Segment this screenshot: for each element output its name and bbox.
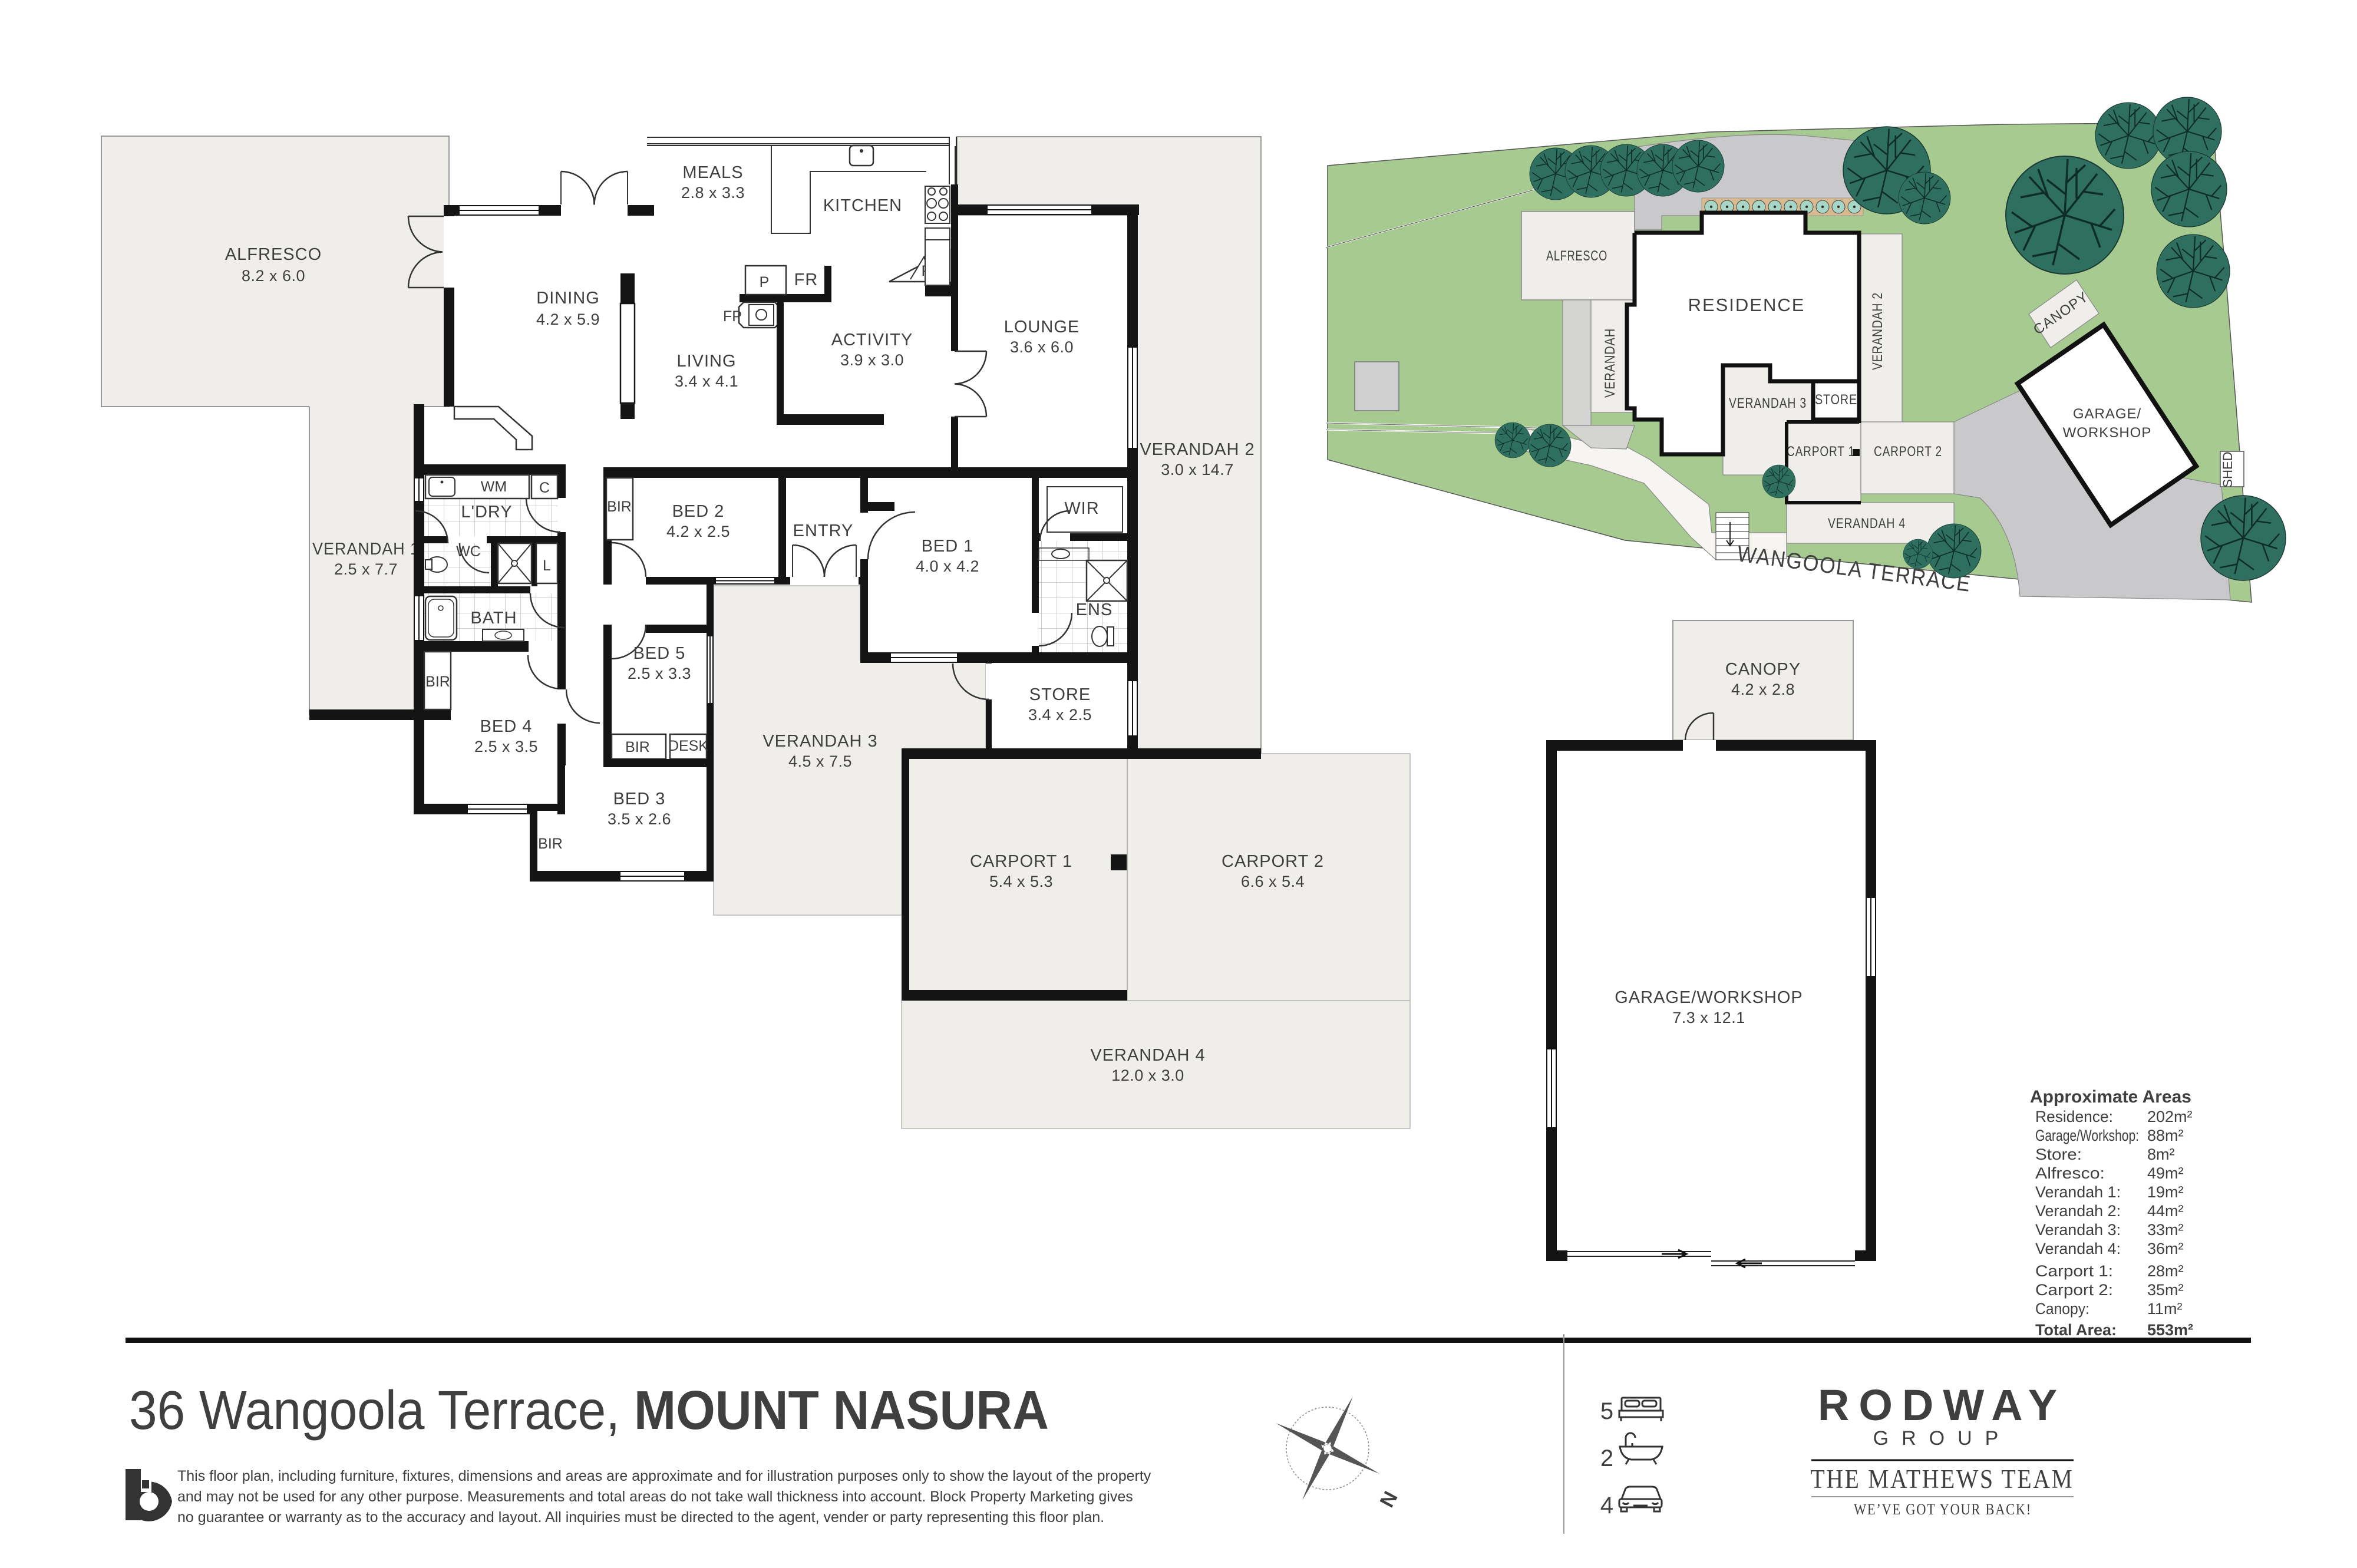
svg-text:BED 5: BED 5 xyxy=(633,644,686,663)
svg-text:8m²: 8m² xyxy=(2147,1146,2175,1163)
svg-text:and may not be used for any ot: and may not be used for any other purpos… xyxy=(177,1488,1133,1505)
svg-text:ALFRESCO: ALFRESCO xyxy=(1546,248,1607,264)
svg-text:DESK: DESK xyxy=(668,738,708,754)
svg-text:BIR: BIR xyxy=(607,499,632,515)
svg-text:28m²: 28m² xyxy=(2147,1262,2184,1280)
svg-text:ACTIVITY: ACTIVITY xyxy=(831,331,913,349)
svg-text:CANOPY: CANOPY xyxy=(1725,660,1801,679)
svg-text:3.9 x 3.0: 3.9 x 3.0 xyxy=(840,351,904,369)
svg-text:RODWAY: RODWAY xyxy=(1818,1381,2066,1430)
svg-text:VERANDAH 2: VERANDAH 2 xyxy=(1870,292,1886,370)
svg-text:MEALS: MEALS xyxy=(682,163,743,182)
svg-text:19m²: 19m² xyxy=(2147,1183,2184,1201)
svg-text:6.6 x 5.4: 6.6 x 5.4 xyxy=(1241,873,1305,890)
svg-text:BIR: BIR xyxy=(625,739,650,755)
svg-text:BED 3: BED 3 xyxy=(613,790,666,808)
svg-text:L'DRY: L'DRY xyxy=(461,503,512,521)
svg-text:36m²: 36m² xyxy=(2147,1240,2184,1257)
svg-text:Verandah 1:: Verandah 1: xyxy=(2035,1183,2121,1201)
svg-text:36 Wangoola Terrace, MOUNT NAS: 36 Wangoola Terrace, MOUNT NASURA xyxy=(129,1379,1049,1441)
svg-text:4.2 x 5.9: 4.2 x 5.9 xyxy=(536,311,600,328)
svg-text:VERANDAH: VERANDAH xyxy=(1602,328,1618,398)
svg-text:Garage/Workshop:: Garage/Workshop: xyxy=(2035,1127,2139,1144)
svg-text:35m²: 35m² xyxy=(2147,1281,2184,1299)
svg-text:ENS: ENS xyxy=(1076,600,1113,619)
svg-text:CARPORT 1: CARPORT 1 xyxy=(970,852,1072,871)
svg-text:CARPORT 2: CARPORT 2 xyxy=(1222,852,1324,871)
svg-text:WM: WM xyxy=(481,478,507,495)
svg-text:KITCHEN: KITCHEN xyxy=(823,196,902,215)
svg-text:DINING: DINING xyxy=(536,289,600,308)
svg-text:VERANDAH 3: VERANDAH 3 xyxy=(762,732,877,751)
svg-text:RESIDENCE: RESIDENCE xyxy=(1688,295,1805,315)
svg-text:N: N xyxy=(1375,1487,1401,1511)
svg-text:GARAGE/: GARAGE/ xyxy=(2073,406,2141,422)
svg-text:Store:: Store: xyxy=(2035,1146,2082,1163)
svg-text:FP: FP xyxy=(723,308,742,325)
svg-text:L: L xyxy=(543,557,551,574)
svg-text:4.0 x 4.2: 4.0 x 4.2 xyxy=(916,557,979,575)
svg-text:Canopy:: Canopy: xyxy=(2035,1300,2089,1318)
svg-text:2.5 x 3.3: 2.5 x 3.3 xyxy=(628,665,691,682)
svg-text:WC: WC xyxy=(456,543,481,560)
svg-text:no guarantee or warranty as to: no guarantee or warranty as to the accur… xyxy=(177,1509,1104,1526)
svg-text:Verandah 4:: Verandah 4: xyxy=(2035,1240,2121,1257)
svg-text:2: 2 xyxy=(1600,1445,1613,1471)
svg-text:WORKSHOP: WORKSHOP xyxy=(2063,425,2152,441)
svg-text:5: 5 xyxy=(1600,1398,1613,1424)
svg-text:8.2 x 6.0: 8.2 x 6.0 xyxy=(242,267,305,285)
svg-text:Carport 1:: Carport 1: xyxy=(2035,1262,2113,1280)
svg-text:WE’VE GOT YOUR BACK!: WE’VE GOT YOUR BACK! xyxy=(1854,1501,2032,1518)
svg-text:11m²: 11m² xyxy=(2147,1300,2183,1318)
svg-text:P: P xyxy=(760,274,770,291)
svg-text:3.4 x 4.1: 3.4 x 4.1 xyxy=(675,372,738,390)
svg-text:44m²: 44m² xyxy=(2147,1202,2184,1220)
svg-text:BED 2: BED 2 xyxy=(672,502,725,521)
svg-text:88m²: 88m² xyxy=(2147,1127,2184,1144)
svg-text:3.0 x 14.7: 3.0 x 14.7 xyxy=(1161,461,1234,478)
svg-text:BED 4: BED 4 xyxy=(480,717,533,736)
svg-text:GROUP: GROUP xyxy=(1873,1427,2012,1450)
svg-text:Verandah 3:: Verandah 3: xyxy=(2035,1221,2121,1239)
svg-text:LIVING: LIVING xyxy=(676,352,736,371)
svg-text:ALFRESCO: ALFRESCO xyxy=(225,245,322,264)
svg-text:553m²: 553m² xyxy=(2147,1321,2193,1339)
svg-text:2.5 x 3.5: 2.5 x 3.5 xyxy=(474,738,538,755)
svg-text:CARPORT 2: CARPORT 2 xyxy=(1874,444,1942,460)
svg-text:VERANDAH 3: VERANDAH 3 xyxy=(1729,395,1807,411)
svg-text:3.4 x 2.5: 3.4 x 2.5 xyxy=(1028,706,1092,724)
svg-text:C: C xyxy=(539,480,550,496)
svg-text:5.4 x 5.3: 5.4 x 5.3 xyxy=(989,873,1053,890)
svg-text:VERANDAH 4: VERANDAH 4 xyxy=(1090,1046,1205,1065)
svg-text:STORE: STORE xyxy=(1029,685,1091,704)
svg-text:4: 4 xyxy=(1600,1493,1613,1519)
svg-text:WIR: WIR xyxy=(1064,499,1099,518)
svg-text:2.8 x 3.3: 2.8 x 3.3 xyxy=(681,184,745,202)
svg-text:Residence:: Residence: xyxy=(2035,1108,2113,1125)
svg-text:BIR: BIR xyxy=(538,836,563,852)
svg-text:202m²: 202m² xyxy=(2147,1108,2193,1125)
svg-text:2.5 x 7.7: 2.5 x 7.7 xyxy=(334,560,398,578)
svg-text:LOUNGE: LOUNGE xyxy=(1004,318,1080,336)
svg-text:3.6 x 6.0: 3.6 x 6.0 xyxy=(1010,338,1074,356)
svg-text:3.5 x 2.6: 3.5 x 2.6 xyxy=(608,810,671,828)
svg-text:Carport 2:: Carport 2: xyxy=(2035,1281,2113,1299)
svg-text:VERANDAH 4: VERANDAH 4 xyxy=(1828,516,1906,532)
svg-text:VERANDAH 1: VERANDAH 1 xyxy=(312,540,420,559)
svg-text:4.2 x 2.8: 4.2 x 2.8 xyxy=(1731,681,1795,698)
svg-text:BIR: BIR xyxy=(425,674,450,690)
svg-text:7.3 x 12.1: 7.3 x 12.1 xyxy=(1672,1009,1745,1026)
svg-text:33m²: 33m² xyxy=(2147,1221,2184,1239)
svg-text:THE MATHEWS TEAM: THE MATHEWS TEAM xyxy=(1811,1464,2074,1494)
svg-text:STORE: STORE xyxy=(1815,392,1857,408)
svg-text:49m²: 49m² xyxy=(2147,1164,2184,1182)
svg-text:GARAGE/WORKSHOP: GARAGE/WORKSHOP xyxy=(1615,988,1803,1007)
svg-text:CARPORT 1: CARPORT 1 xyxy=(1787,444,1855,460)
svg-text:Approximate Areas: Approximate Areas xyxy=(2030,1087,2191,1107)
svg-text:4.2 x 2.5: 4.2 x 2.5 xyxy=(666,523,730,540)
svg-text:BED 1: BED 1 xyxy=(922,537,974,556)
svg-text:This floor plan, including fur: This floor plan, including furniture, fi… xyxy=(177,1468,1151,1484)
svg-text:12.0 x 3.0: 12.0 x 3.0 xyxy=(1111,1067,1184,1084)
svg-text:VERANDAH 2: VERANDAH 2 xyxy=(1140,440,1255,459)
svg-text:Total Area:: Total Area: xyxy=(2035,1321,2117,1339)
svg-text:Alfresco:: Alfresco: xyxy=(2035,1164,2105,1182)
svg-text:SHED: SHED xyxy=(2220,451,2235,487)
svg-text:ENTRY: ENTRY xyxy=(793,521,854,540)
svg-text:BATH: BATH xyxy=(470,609,517,628)
svg-text:4.5 x 7.5: 4.5 x 7.5 xyxy=(788,752,852,770)
svg-text:FR: FR xyxy=(794,270,818,289)
svg-text:Verandah 2:: Verandah 2: xyxy=(2035,1202,2121,1220)
